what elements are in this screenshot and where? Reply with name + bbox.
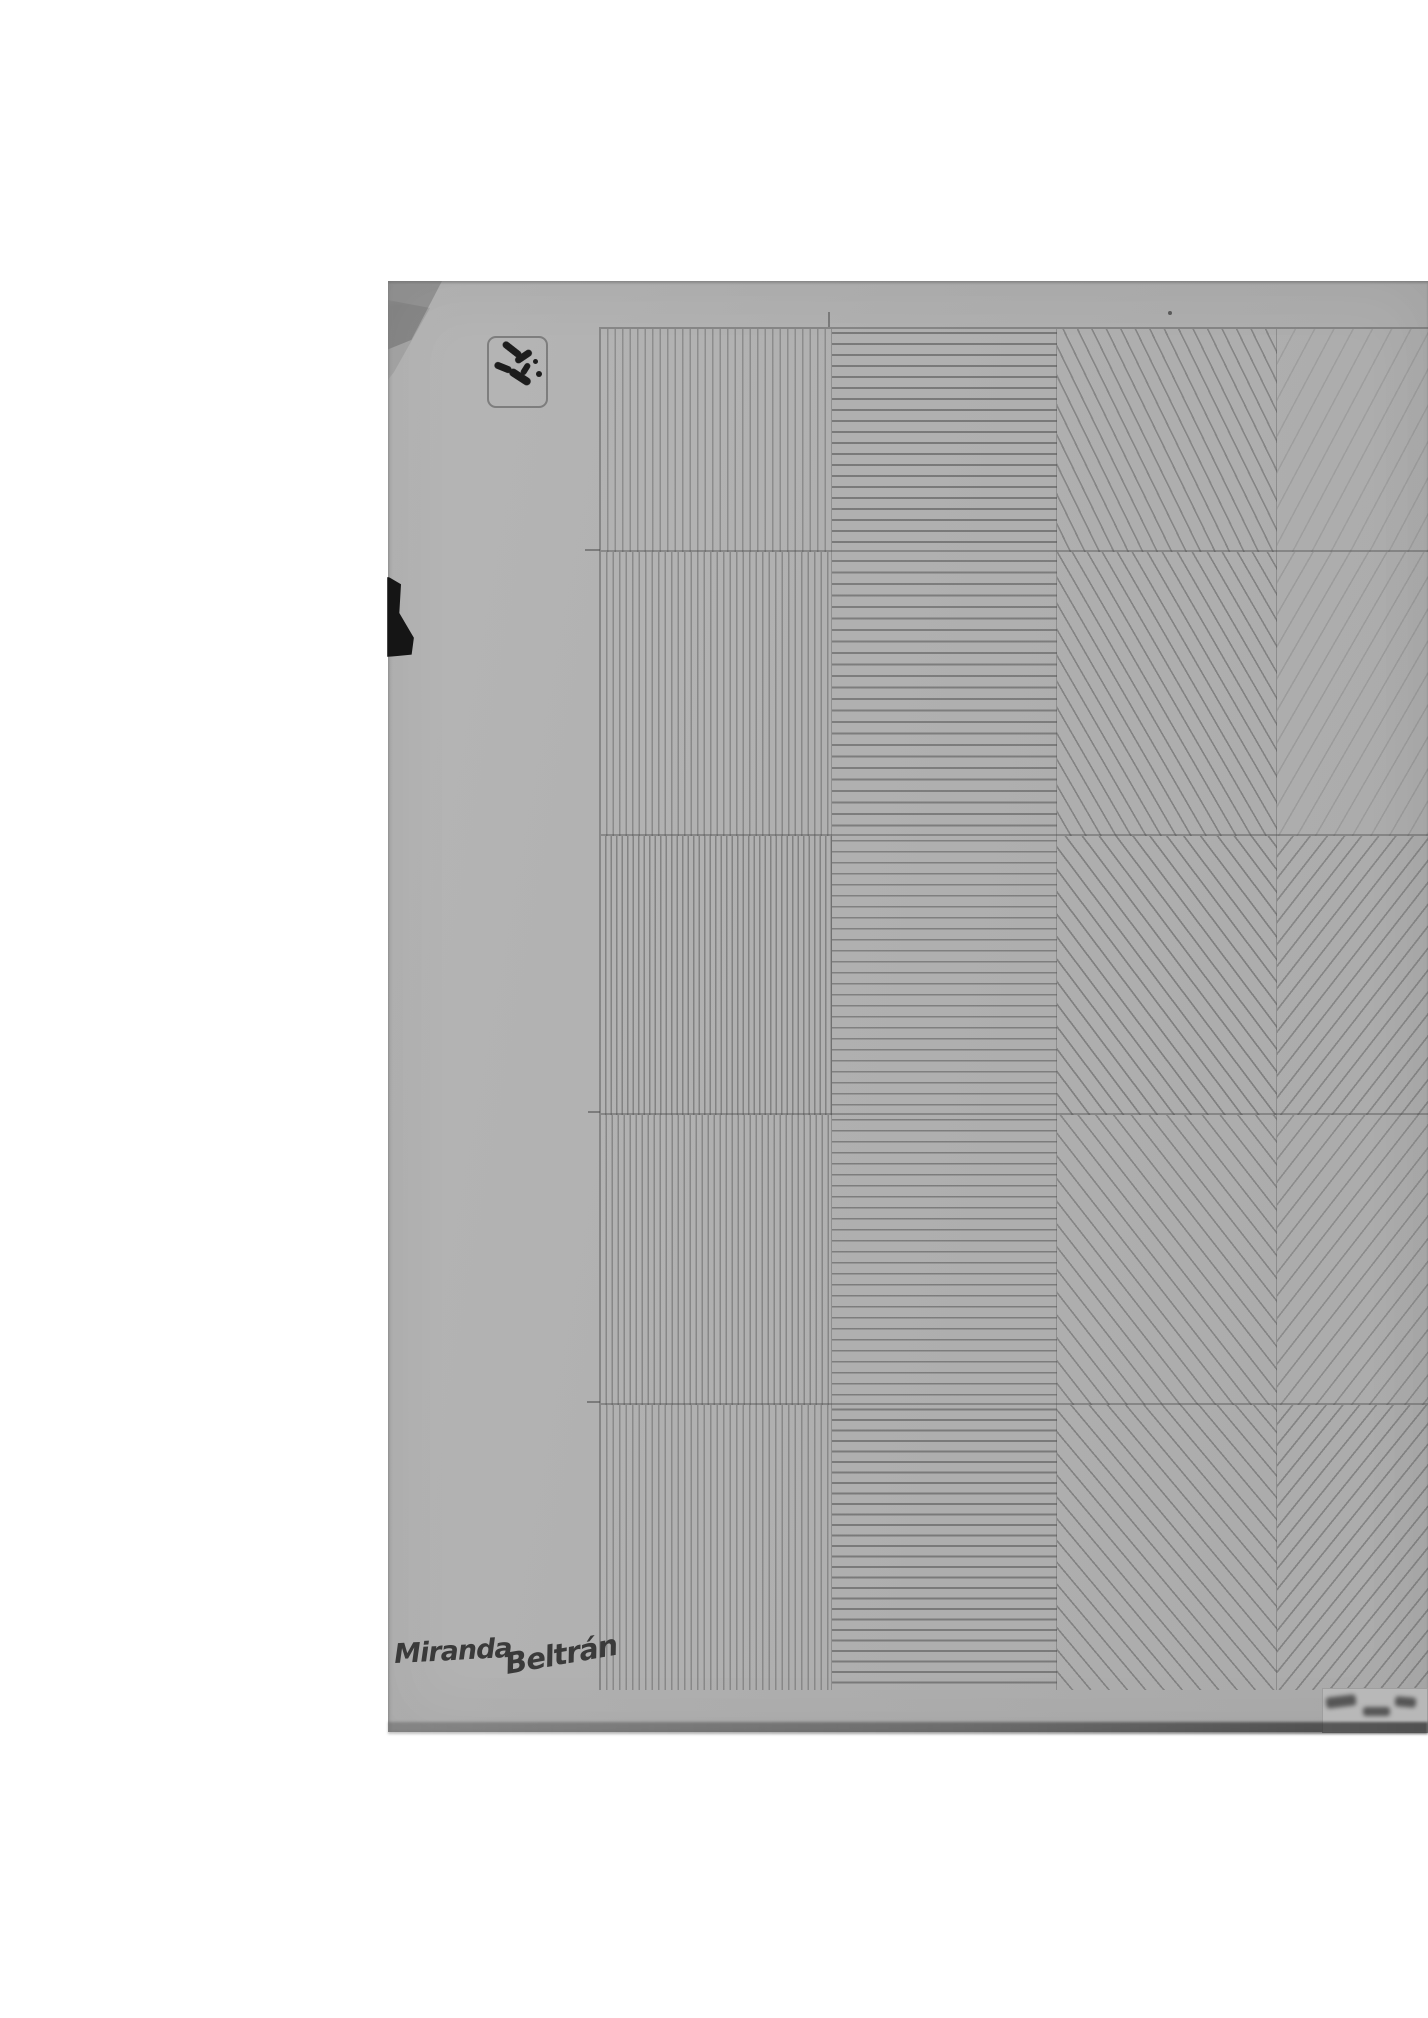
hatching-cell-diagonal-up-lines: [1277, 329, 1428, 552]
ink-stamp-dot: [533, 359, 538, 364]
ink-stamp-dot: [536, 371, 542, 377]
tape-smudge: [1395, 1696, 1417, 1708]
hatching-cell-horizontal-lines: [832, 1115, 1057, 1405]
hatching-cell-horizontal-lines: [832, 836, 1057, 1115]
signature-first-name: Miranda: [393, 1633, 512, 1670]
hatching-cell-vertical-lines: [601, 1405, 832, 1690]
pencil-speck: [1168, 311, 1172, 315]
ink-stamp: [487, 336, 548, 408]
hatching-cell-vertical-lines: [601, 329, 832, 552]
pencil-tick: [587, 1401, 600, 1403]
pencil-tick: [585, 549, 600, 551]
hatching-cell-diagonal-up-lines: [1277, 836, 1428, 1115]
hatching-grid: [599, 327, 1428, 1690]
pencil-tick: [828, 312, 830, 327]
hatching-cell-vertical-lines: [601, 552, 832, 836]
hatching-cell-diagonal-down-lines: [1057, 1115, 1277, 1405]
pencil-tick: [588, 1111, 600, 1113]
hatching-cell-vertical-lines: [601, 836, 832, 1115]
hatching-cell-diagonal-down-lines: [1057, 329, 1277, 552]
paper-bottom-edge-shadow: [388, 1722, 1428, 1734]
hatching-cell-diagonal-down-lines: [1057, 1405, 1277, 1690]
hatching-cell-diagonal-down-lines: [1057, 836, 1277, 1115]
hatching-cell-diagonal-up-lines: [1277, 1405, 1428, 1690]
hatching-cell-diagonal-up-lines: [1277, 552, 1428, 836]
photographed-pencil-drawing: { "artwork": { "title": "Pencil hatching…: [0, 0, 1428, 2018]
hatching-cell-horizontal-lines: [832, 1405, 1057, 1690]
hatching-cell-horizontal-lines: [832, 552, 1057, 836]
hatching-cell-horizontal-lines: [832, 329, 1057, 552]
tape-smudge: [1363, 1707, 1390, 1716]
tape-smudge: [1325, 1694, 1356, 1709]
hatching-cell-diagonal-up-lines: [1277, 1115, 1428, 1405]
hatching-cell-vertical-lines: [601, 1115, 832, 1405]
hatching-cell-diagonal-down-lines: [1057, 552, 1277, 836]
ink-stamp-stroke: [520, 362, 532, 376]
